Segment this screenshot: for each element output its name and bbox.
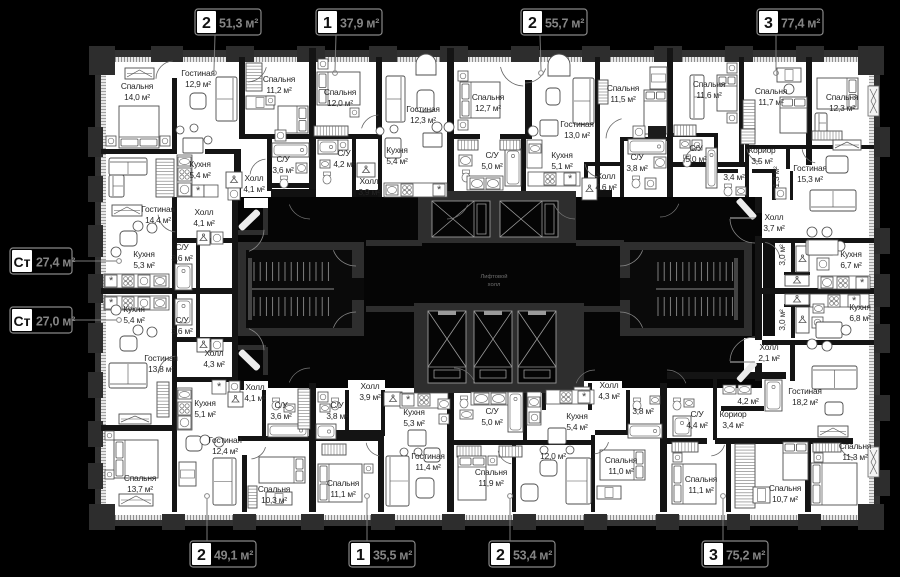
- svg-text:Спальня: Спальня: [839, 441, 871, 451]
- svg-text:Гостиная: Гостиная: [560, 119, 594, 129]
- svg-text:Кухня: Кухня: [849, 302, 870, 312]
- svg-text:11,5 м²: 11,5 м²: [610, 94, 636, 104]
- svg-text:12,0 м²: 12,0 м²: [540, 451, 566, 461]
- svg-text:11,3 м²: 11,3 м²: [842, 452, 868, 462]
- svg-text:11,1 м²: 11,1 м²: [330, 489, 356, 499]
- svg-text:Спальня: Спальня: [263, 74, 295, 84]
- svg-text:53,4 м²: 53,4 м²: [513, 549, 552, 563]
- svg-text:Гостиная: Гостиная: [144, 353, 178, 363]
- svg-text:3,8 м²: 3,8 м²: [326, 411, 348, 421]
- svg-text:Кориор: Кориор: [749, 145, 777, 155]
- svg-text:Холл: Холл: [600, 380, 619, 390]
- svg-text:Холл: Холл: [360, 176, 379, 186]
- svg-text:Спальня: Спальня: [121, 81, 153, 91]
- svg-text:5,0 м²: 5,0 м²: [481, 417, 503, 427]
- svg-text:Спальня: Спальня: [607, 83, 639, 93]
- svg-text:10,7 м²: 10,7 м²: [772, 494, 798, 504]
- svg-text:1: 1: [323, 15, 332, 32]
- svg-text:3,9 м²: 3,9 м²: [359, 392, 381, 402]
- svg-text:5,1 м²: 5,1 м²: [551, 161, 573, 171]
- svg-text:Спальня: Спальня: [472, 92, 504, 102]
- svg-text:11,7 м²: 11,7 м²: [758, 97, 784, 107]
- svg-text:Спальня: Спальня: [693, 79, 725, 89]
- svg-text:Кухня: Кухня: [386, 145, 407, 155]
- svg-text:5,0 м²: 5,0 м²: [481, 161, 503, 171]
- svg-text:2: 2: [496, 547, 505, 564]
- svg-text:С/У: С/У: [337, 148, 351, 158]
- svg-text:4,2 м²: 4,2 м²: [737, 396, 759, 406]
- svg-text:3,7 м²: 3,7 м²: [763, 223, 785, 233]
- svg-text:77,4 м²: 77,4 м²: [781, 17, 820, 31]
- svg-text:12,7 м²: 12,7 м²: [475, 103, 501, 113]
- svg-text:11,0 м²: 11,0 м²: [608, 466, 634, 476]
- svg-text:3: 3: [709, 547, 718, 564]
- svg-text:1,3 м²: 1,3 м²: [771, 166, 781, 188]
- svg-text:11,4 м²: 11,4 м²: [415, 462, 441, 472]
- svg-text:Спальня: Спальня: [327, 478, 359, 488]
- svg-text:5,1 м²: 5,1 м²: [194, 409, 216, 419]
- svg-text:12,3 м²: 12,3 м²: [829, 103, 855, 113]
- svg-text:Кухня: Кухня: [840, 249, 861, 259]
- svg-text:12,4 м²: 12,4 м²: [212, 446, 238, 456]
- svg-text:5,3 м²: 5,3 м²: [403, 418, 425, 428]
- svg-text:10,3 м²: 10,3 м²: [261, 495, 287, 505]
- svg-text:С/У: С/У: [630, 152, 644, 162]
- svg-text:С/У: С/У: [274, 400, 288, 410]
- svg-text:3,9 м²: 3,9 м²: [358, 187, 380, 197]
- svg-text:14,0 м²: 14,0 м²: [124, 92, 150, 102]
- svg-text:Гостиная: Гостиная: [208, 435, 242, 445]
- svg-text:С/У: С/У: [175, 242, 189, 252]
- svg-text:2: 2: [528, 15, 537, 32]
- svg-text:С/У: С/У: [690, 409, 704, 419]
- svg-text:11,1 м²: 11,1 м²: [688, 485, 714, 495]
- svg-text:Кухня: Кухня: [123, 304, 144, 314]
- svg-text:4,1 м²: 4,1 м²: [244, 393, 266, 403]
- svg-text:С/У: С/У: [276, 154, 290, 164]
- svg-text:2,1 м²: 2,1 м²: [758, 353, 780, 363]
- svg-text:Лифтовой: Лифтовой: [481, 273, 508, 280]
- svg-text:Ст: Ст: [14, 254, 31, 270]
- svg-text:75,2 м²: 75,2 м²: [726, 549, 765, 563]
- svg-text:Ст: Ст: [14, 313, 31, 329]
- svg-text:Холл: Холл: [205, 348, 224, 358]
- svg-text:Кориор: Кориор: [720, 409, 748, 419]
- svg-text:5,3 м²: 5,3 м²: [133, 260, 155, 270]
- svg-text:Кухня: Кухня: [403, 407, 424, 417]
- svg-text:Кухня: Кухня: [189, 159, 210, 169]
- svg-text:Кухня: Кухня: [551, 150, 572, 160]
- svg-text:13,7 м²: 13,7 м²: [127, 484, 153, 494]
- svg-text:Холл: Холл: [245, 173, 264, 183]
- svg-text:1: 1: [356, 547, 365, 564]
- svg-text:27,0 м²: 27,0 м²: [36, 315, 75, 329]
- svg-text:Кухня: Кухня: [133, 249, 154, 259]
- svg-text:Спальня: Спальня: [475, 467, 507, 477]
- svg-text:3,8 м²: 3,8 м²: [626, 163, 648, 173]
- svg-text:С/У: С/У: [689, 143, 703, 153]
- svg-text:49,1 м²: 49,1 м²: [214, 549, 253, 563]
- svg-text:11,9 м²: 11,9 м²: [478, 478, 504, 488]
- svg-text:Кухня: Кухня: [194, 398, 215, 408]
- svg-text:4,3 м²: 4,3 м²: [203, 359, 225, 369]
- svg-text:3,6 м²: 3,6 м²: [272, 165, 294, 175]
- svg-text:Гостиная: Гостиная: [406, 104, 440, 114]
- svg-text:Холл: Холл: [765, 212, 784, 222]
- svg-text:Спальня: Спальня: [755, 86, 787, 96]
- svg-text:Холл: Холл: [597, 171, 616, 181]
- svg-text:5,4 м²: 5,4 м²: [189, 170, 211, 180]
- svg-text:3: 3: [764, 15, 773, 32]
- svg-text:4,1 м²: 4,1 м²: [193, 218, 215, 228]
- svg-text:13,0 м²: 13,0 м²: [564, 130, 590, 140]
- svg-text:35,5 м²: 35,5 м²: [373, 549, 412, 563]
- svg-text:5,4 м²: 5,4 м²: [123, 315, 145, 325]
- svg-text:5,4 м²: 5,4 м²: [386, 156, 408, 166]
- svg-text:Гостиная: Гостиная: [793, 163, 827, 173]
- svg-text:4,1 м²: 4,1 м²: [243, 184, 265, 194]
- svg-text:6,8 м²: 6,8 м²: [849, 313, 871, 323]
- svg-text:Кухня: Кухня: [566, 411, 587, 421]
- svg-text:51,3 м²: 51,3 м²: [219, 17, 258, 31]
- svg-text:3,8 м²: 3,8 м²: [632, 406, 654, 416]
- svg-text:Гостиная: Гостиная: [788, 386, 822, 396]
- svg-text:Холл: Холл: [760, 342, 779, 352]
- svg-text:3,6 м²: 3,6 м²: [171, 253, 193, 263]
- svg-text:Спальня: Спальня: [605, 455, 637, 465]
- svg-text:Холл: Холл: [195, 207, 214, 217]
- svg-text:12,3 м²: 12,3 м²: [410, 115, 436, 125]
- svg-text:12,9 м²: 12,9 м²: [185, 79, 211, 89]
- svg-text:Холл: Холл: [361, 381, 380, 391]
- svg-text:14,4 м²: 14,4 м²: [145, 215, 171, 225]
- svg-text:С/У: С/У: [175, 315, 189, 325]
- svg-text:Спальня: Спальня: [685, 474, 717, 484]
- svg-text:С/У: С/У: [485, 150, 499, 160]
- svg-text:холл: холл: [488, 282, 501, 288]
- svg-text:5,4 м²: 5,4 м²: [566, 422, 588, 432]
- svg-text:4,3 м²: 4,3 м²: [598, 391, 620, 401]
- svg-text:6,7 м²: 6,7 м²: [840, 260, 862, 270]
- svg-text:12,0 м²: 12,0 м²: [327, 98, 353, 108]
- svg-text:3,4 м²: 3,4 м²: [723, 172, 745, 182]
- svg-text:11,2 м²: 11,2 м²: [266, 85, 292, 95]
- svg-text:55,7 м²: 55,7 м²: [545, 17, 584, 31]
- svg-text:Холл: Холл: [246, 382, 265, 392]
- svg-text:4,2 м²: 4,2 м²: [333, 159, 355, 169]
- svg-text:3,0 м²: 3,0 м²: [777, 244, 787, 266]
- svg-text:Спальня: Спальня: [324, 87, 356, 97]
- svg-text:Гостиная: Гостиная: [411, 451, 445, 461]
- svg-text:15,3 м²: 15,3 м²: [797, 174, 823, 184]
- svg-text:3,6 м²: 3,6 м²: [171, 326, 193, 336]
- svg-text:11,6 м²: 11,6 м²: [696, 90, 722, 100]
- svg-text:3,0 м²: 3,0 м²: [777, 309, 787, 331]
- svg-text:3,6 м²: 3,6 м²: [270, 411, 292, 421]
- svg-text:27,4 м²: 27,4 м²: [36, 256, 75, 270]
- svg-text:37,9 м²: 37,9 м²: [340, 17, 379, 31]
- svg-text:5,0 м²: 5,0 м²: [685, 154, 707, 164]
- svg-text:4,6 м²: 4,6 м²: [595, 182, 617, 192]
- svg-text:Спальня: Спальня: [769, 483, 801, 493]
- svg-text:С/У: С/У: [330, 400, 344, 410]
- svg-text:18,2 м²: 18,2 м²: [792, 397, 818, 407]
- svg-text:3,4 м²: 3,4 м²: [722, 420, 744, 430]
- svg-text:13,8 м²: 13,8 м²: [148, 364, 174, 374]
- svg-text:С/У: С/У: [485, 406, 499, 416]
- svg-text:Гостиная: Гостиная: [181, 68, 215, 78]
- svg-text:2: 2: [197, 547, 206, 564]
- svg-text:Спальня: Спальня: [124, 473, 156, 483]
- svg-text:4,4 м²: 4,4 м²: [686, 420, 708, 430]
- svg-text:3,5 м²: 3,5 м²: [751, 156, 773, 166]
- svg-text:Гостиная: Гостиная: [141, 204, 175, 214]
- svg-text:2: 2: [202, 15, 211, 32]
- svg-text:Спальня: Спальня: [258, 484, 290, 494]
- svg-text:Спальня: Спальня: [826, 92, 858, 102]
